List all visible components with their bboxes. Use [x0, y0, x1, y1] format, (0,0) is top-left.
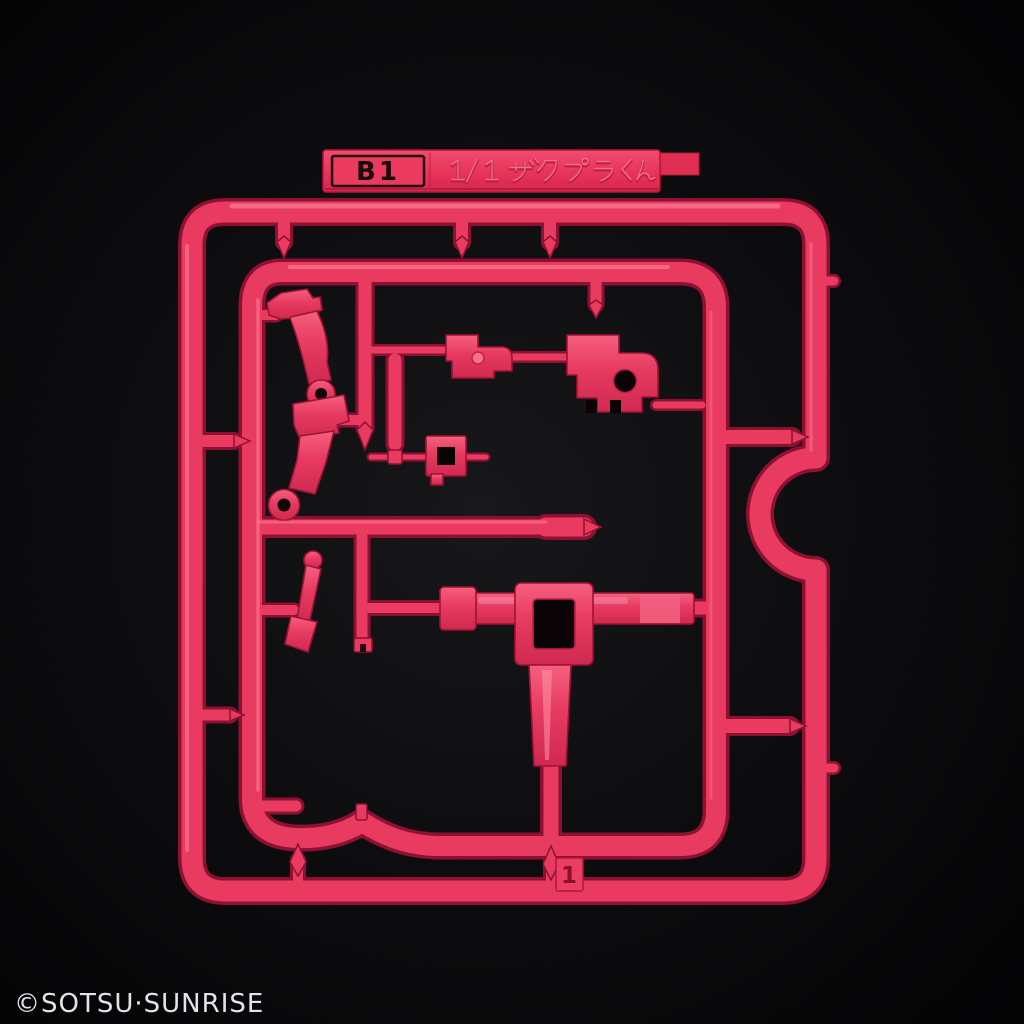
- bar-foot-notch: [360, 644, 366, 652]
- wave-cusp-tab: [356, 804, 367, 820]
- runner-photo-svg: B1 1/1 ザクプラくん 1 ©SOTSU·SUNRISE: [0, 0, 1024, 1024]
- runner-tag: B1 1/1 ザクプラくん: [323, 150, 699, 192]
- eye-hole: [614, 370, 637, 393]
- tag-extension: [659, 153, 699, 175]
- pin-foot: [388, 450, 402, 464]
- square-socket-hole: [533, 599, 575, 649]
- product-photo: B1 1/1 ザクプラくん 1 ©SOTSU·SUNRISE: [0, 0, 1024, 1024]
- bar-light-segment: [640, 594, 680, 623]
- gate-number-text: 1: [561, 863, 577, 889]
- part-number-text: B1: [356, 157, 400, 187]
- joint-hole: [278, 499, 291, 512]
- bottom-notch: [586, 400, 597, 413]
- boss-pin: [472, 352, 484, 364]
- bottom-notch: [610, 400, 621, 413]
- square-hole: [437, 447, 455, 465]
- gate-number-tab: 1: [556, 858, 583, 891]
- copyright-text: ©SOTSU·SUNRISE: [14, 989, 264, 1019]
